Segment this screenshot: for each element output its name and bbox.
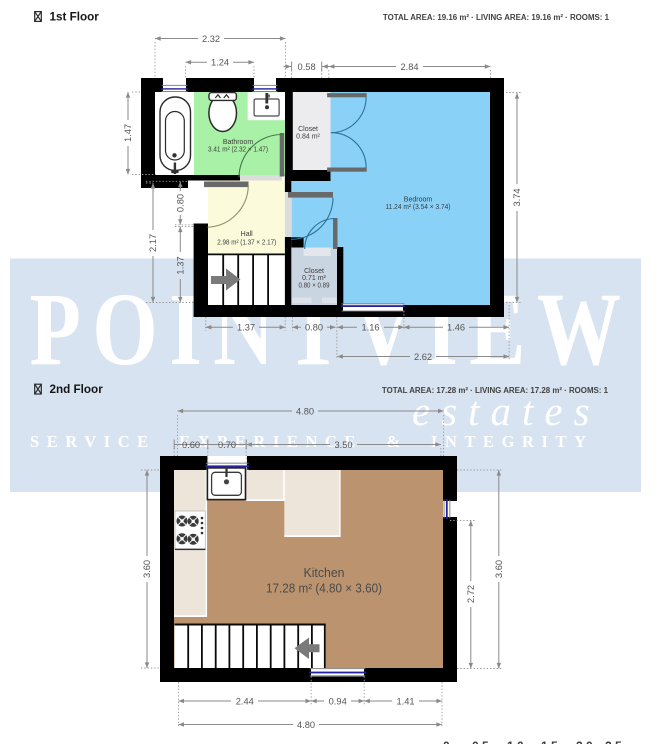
svg-text:2.5: 2.5	[605, 739, 622, 744]
svg-text:1.16: 1.16	[361, 323, 379, 333]
svg-text:Closet: Closet	[298, 126, 318, 133]
svg-text:2.72: 2.72	[466, 585, 476, 603]
svg-text:1.46: 1.46	[447, 323, 465, 333]
svg-text:1.5: 1.5	[541, 739, 558, 744]
svg-text:Bedroom: Bedroom	[404, 197, 433, 204]
svg-text:0.84 m²: 0.84 m²	[296, 134, 320, 141]
svg-text:2.0: 2.0	[576, 739, 593, 744]
svg-text:1.37: 1.37	[176, 256, 186, 274]
svg-text:2.98 m² (1.37 × 2.17): 2.98 m² (1.37 × 2.17)	[217, 239, 276, 246]
svg-text:0.94: 0.94	[329, 696, 347, 706]
svg-text:1.41: 1.41	[396, 696, 414, 706]
svg-text:1.37: 1.37	[237, 323, 255, 333]
svg-text:0.5: 0.5	[472, 739, 489, 744]
svg-text:4.80: 4.80	[296, 406, 314, 416]
svg-text:1st Floor: 1st Floor	[50, 10, 100, 23]
svg-text:0.71 m²: 0.71 m²	[302, 275, 326, 282]
svg-text:3.60: 3.60	[142, 560, 152, 578]
svg-text:0.58: 0.58	[298, 62, 316, 72]
svg-text:3.41 m² (2.32 × 1.47): 3.41 m² (2.32 × 1.47)	[208, 147, 268, 154]
svg-text:0.70: 0.70	[218, 440, 236, 450]
svg-text:Closet: Closet	[304, 268, 324, 275]
svg-text:1.0: 1.0	[507, 739, 524, 744]
svg-text:17.28 m² (4.80 × 3.60): 17.28 m² (4.80 × 3.60)	[266, 582, 382, 596]
svg-text:0.60: 0.60	[182, 440, 200, 450]
svg-text:1.24: 1.24	[211, 58, 229, 68]
svg-text:2.17: 2.17	[148, 234, 158, 252]
svg-text:1.47: 1.47	[123, 124, 133, 142]
svg-text:0: 0	[443, 739, 450, 744]
svg-text:11.24 m² (3.54 × 3.74): 11.24 m² (3.54 × 3.74)	[386, 204, 451, 211]
svg-text:2.32: 2.32	[202, 34, 220, 44]
svg-text:4.80: 4.80	[297, 720, 315, 730]
svg-text:3.74: 3.74	[512, 188, 522, 206]
svg-text:2nd Floor: 2nd Floor	[50, 383, 104, 396]
svg-text:Bathroom: Bathroom	[223, 139, 254, 146]
svg-text:2.84: 2.84	[400, 62, 418, 72]
svg-text:0.80 × 0.89: 0.80 × 0.89	[299, 283, 330, 290]
svg-text:3.50: 3.50	[334, 440, 352, 450]
svg-text:2.44: 2.44	[236, 696, 254, 706]
svg-text:0.80: 0.80	[305, 323, 323, 333]
svg-text:2.62: 2.62	[414, 352, 432, 362]
svg-text:TOTAL AREA: 19.16 m² · LIVING: TOTAL AREA: 19.16 m² · LIVING AREA: 19.1…	[383, 13, 610, 22]
svg-text:3.60: 3.60	[494, 560, 504, 578]
svg-text:Hall: Hall	[241, 231, 254, 238]
svg-text:0.80: 0.80	[176, 194, 186, 212]
svg-text:TOTAL AREA: 17.28 m² · LIVING: TOTAL AREA: 17.28 m² · LIVING AREA: 17.2…	[382, 386, 609, 395]
svg-text:Kitchen: Kitchen	[304, 565, 345, 580]
